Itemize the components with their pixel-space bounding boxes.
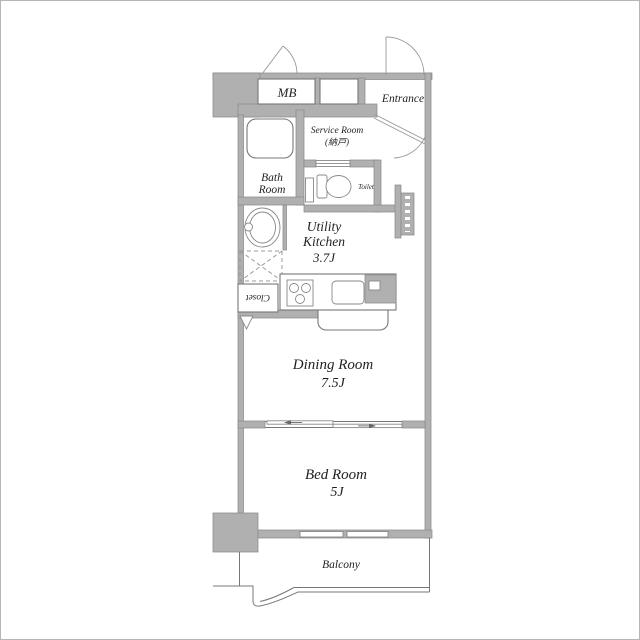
wall-toilet-top-right [350, 160, 377, 167]
floor-plan-drawing: MB Entrance Service Room (納戸) Bath Room … [1, 1, 639, 639]
wall-toilet-bottom [304, 205, 396, 212]
label-utility-size: 3.7J [312, 250, 336, 265]
label-bed: Bed Room [305, 467, 367, 483]
wall-right [425, 73, 431, 538]
label-service-room: Service Room [311, 126, 364, 136]
mb-door-arc [283, 46, 297, 74]
mb-door-leaf [262, 46, 283, 74]
label-balcony: Balcony [322, 559, 361, 571]
entrance-door-arc [386, 37, 424, 75]
bathtub [247, 119, 293, 158]
pillar-bottom-left [213, 513, 258, 552]
label-bed-size: 5J [330, 485, 344, 500]
label-closet: Closet [246, 292, 271, 302]
wash-basin-inner [250, 212, 276, 243]
entrance-inner-door-arc [394, 137, 425, 158]
floor-plan: MB Entrance Service Room (納戸) Bath Room … [0, 0, 640, 640]
stove-burner-2 [302, 284, 311, 293]
balcony-rail-inner [260, 588, 430, 602]
toilet-tank [317, 175, 327, 198]
window-left [300, 532, 343, 538]
wall-toilet-top-left [304, 160, 316, 167]
wash-basin-faucet [245, 223, 253, 231]
label-dining: Dining Room [292, 357, 374, 373]
wall-bath-bottom [238, 197, 304, 205]
kitchen-sink [332, 281, 364, 304]
wall-toilet-right [374, 160, 381, 212]
balcony-rail-outer [213, 586, 430, 606]
wall-bath-service [296, 110, 304, 205]
label-bath-1: Bath [261, 172, 283, 184]
label-service-room-jp: (納戸) [325, 137, 349, 147]
label-utility-2: Kitchen [302, 234, 345, 249]
kitchen-end-unit-inset [369, 281, 380, 290]
label-bath-2: Room [258, 184, 286, 196]
utility-box [320, 79, 358, 104]
window-right [347, 532, 388, 538]
label-dining-size: 7.5J [321, 376, 346, 391]
label-entrance: Entrance [381, 93, 424, 105]
stove-burner-3 [296, 295, 305, 304]
stove-burner-1 [290, 284, 299, 293]
wall-under-mb [238, 104, 377, 117]
wall-partition-stub-left [238, 421, 265, 428]
wall-partition-stub-right [402, 421, 425, 428]
entrance-step-line [374, 114, 425, 144]
label-toilet: Toilet [358, 183, 375, 191]
label-mb: MB [277, 85, 297, 100]
sliding-partition [265, 420, 402, 428]
toilet-bowl [326, 176, 351, 198]
toilet-shelf [306, 178, 314, 202]
shoe-cabinet [401, 193, 414, 235]
wall-basin-divider [283, 205, 287, 250]
label-utility-1: Utility [307, 219, 342, 234]
washing-machine-cross [240, 251, 282, 281]
wall-corridor [395, 185, 401, 238]
